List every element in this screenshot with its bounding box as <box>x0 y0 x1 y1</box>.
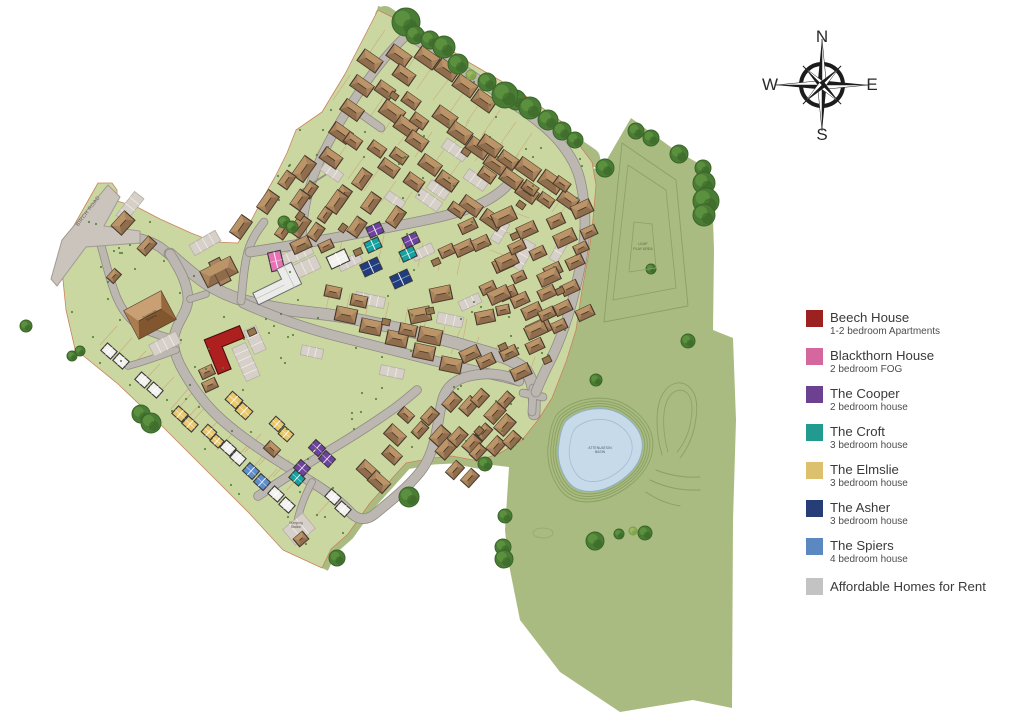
svg-text:PLAY AREA: PLAY AREA <box>633 247 653 251</box>
svg-text:Affordable Homes for Rent: Affordable Homes for Rent <box>830 579 986 594</box>
svg-text:S: S <box>816 125 827 144</box>
svg-text:W: W <box>762 75 778 94</box>
svg-text:The Croft: The Croft <box>830 424 885 439</box>
svg-text:3 bedroom house: 3 bedroom house <box>830 440 908 451</box>
svg-text:The Spiers: The Spiers <box>830 538 894 553</box>
svg-text:2 bedroom FOG: 2 bedroom FOG <box>830 364 902 375</box>
svg-text:E: E <box>866 75 877 94</box>
svg-text:Blackthorn House: Blackthorn House <box>830 348 934 363</box>
svg-text:BASIN: BASIN <box>595 450 606 454</box>
svg-text:4 bedroom house: 4 bedroom house <box>830 554 908 565</box>
svg-text:3 bedroom house: 3 bedroom house <box>830 478 908 489</box>
svg-text:Station: Station <box>291 525 302 529</box>
svg-text:1-2 bedroom Apartments: 1-2 bedroom Apartments <box>830 326 940 337</box>
svg-text:N: N <box>816 27 828 46</box>
svg-text:The Asher: The Asher <box>830 500 891 515</box>
svg-text:The Elmslie: The Elmslie <box>830 462 899 477</box>
svg-text:The Cooper: The Cooper <box>830 386 900 401</box>
svg-text:Beech House: Beech House <box>830 310 909 325</box>
svg-text:2 bedroom house: 2 bedroom house <box>830 402 908 413</box>
svg-text:LEAP: LEAP <box>638 242 648 246</box>
svg-text:3 bedroom house: 3 bedroom house <box>830 516 908 527</box>
